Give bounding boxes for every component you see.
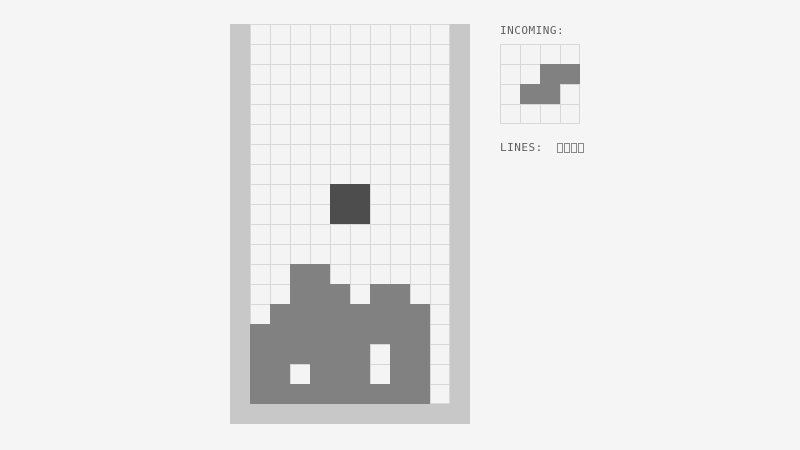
board-wall-right <box>450 24 470 424</box>
pile-cell <box>330 364 350 384</box>
pile-cell <box>270 364 290 384</box>
pile-cell <box>390 304 410 324</box>
lines-digit-box <box>557 143 563 153</box>
incoming-piece-cell <box>540 64 560 84</box>
pile-cell <box>310 324 330 344</box>
game-screen: INCOMING: LINES: <box>0 0 800 450</box>
pile-cell <box>410 344 430 364</box>
pile-cell <box>370 384 390 404</box>
pile-cell <box>330 324 350 344</box>
pile-cell <box>270 324 290 344</box>
pile-cell <box>390 324 410 344</box>
pile-cell <box>370 284 390 304</box>
pile-cell <box>250 324 270 344</box>
pile-cell <box>390 284 410 304</box>
pile-cell <box>410 304 430 324</box>
incoming-piece-cell <box>560 64 580 84</box>
lines-digit-box <box>578 143 584 153</box>
pile-cell <box>250 344 270 364</box>
pile-cell <box>390 364 410 384</box>
pile-cell <box>330 304 350 324</box>
pile-cell <box>330 344 350 364</box>
pile-cell <box>290 284 310 304</box>
pile-cell <box>310 384 330 404</box>
pile-cell <box>410 364 430 384</box>
pile-cell <box>290 344 310 364</box>
board-wall-bottom <box>230 404 470 424</box>
pile-cell <box>290 384 310 404</box>
lines-digit-box <box>564 143 570 153</box>
pile-cell <box>390 384 410 404</box>
pile-cell <box>390 344 410 364</box>
playfield-grid[interactable] <box>250 24 450 404</box>
pile-cell <box>310 344 330 364</box>
pile-cell <box>250 364 270 384</box>
pile-cell <box>410 324 430 344</box>
tetris-board <box>230 24 470 424</box>
pile-cell <box>250 384 270 404</box>
incoming-piece-cell <box>520 84 540 104</box>
lines-panel: LINES: <box>500 142 700 156</box>
pile-cell <box>350 384 370 404</box>
incoming-preview-grid <box>500 44 580 124</box>
lines-digit-box <box>571 143 577 153</box>
active-piece-cell <box>330 184 350 204</box>
pile-cell <box>290 264 310 284</box>
incoming-label: INCOMING: <box>500 25 564 36</box>
pile-cell <box>350 344 370 364</box>
pile-cell <box>290 304 310 324</box>
pile-cell <box>370 304 390 324</box>
pile-cell <box>310 264 330 284</box>
pile-cell <box>410 384 430 404</box>
pile-cell <box>270 344 290 364</box>
pile-cell <box>270 384 290 404</box>
pile-cell <box>370 324 390 344</box>
pile-cell <box>330 384 350 404</box>
pile-cell <box>350 364 370 384</box>
lines-counter <box>557 143 584 153</box>
pile-cell <box>270 304 290 324</box>
active-piece-cell <box>330 204 350 224</box>
active-piece-cell <box>350 184 370 204</box>
board-wall-left <box>230 24 250 424</box>
active-piece-cell <box>350 204 370 224</box>
pile-cell <box>350 304 370 324</box>
pile-cell <box>310 284 330 304</box>
pile-cell <box>290 324 310 344</box>
pile-cell <box>310 364 330 384</box>
incoming-piece-cell <box>540 84 560 104</box>
pile-cell <box>330 284 350 304</box>
pile-cell <box>350 324 370 344</box>
lines-label: LINES: <box>500 142 700 153</box>
incoming-panel: INCOMING: <box>500 25 564 36</box>
pile-cell <box>310 304 330 324</box>
